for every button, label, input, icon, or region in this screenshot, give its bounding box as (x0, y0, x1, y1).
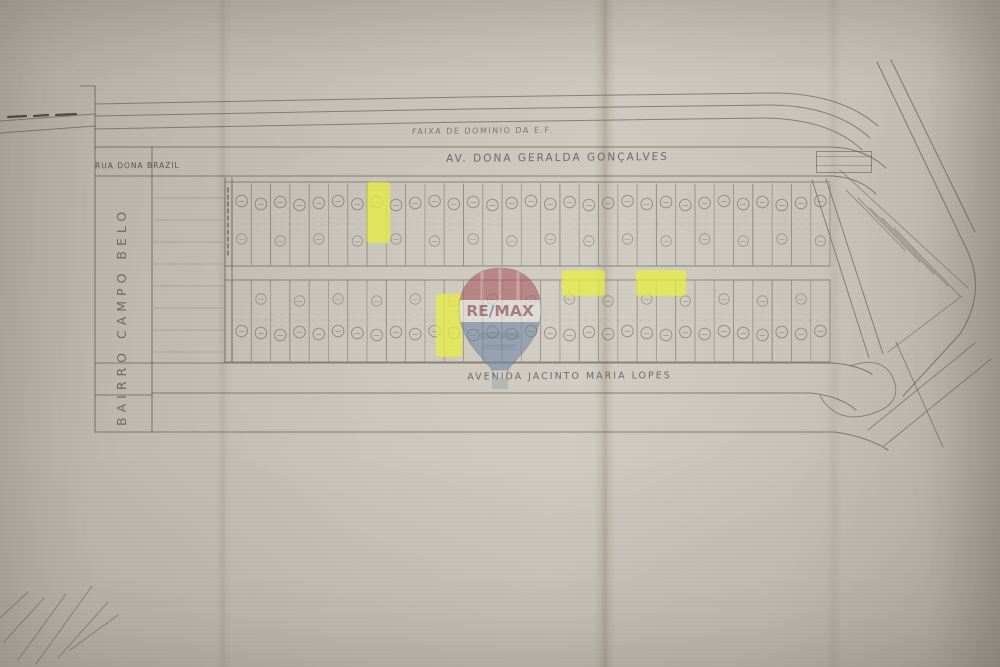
remax-wordmark: RE/MAX (466, 302, 534, 320)
hot-air-balloon-icon: RE/MAX (440, 260, 560, 402)
bottom-right-roads (820, 342, 991, 447)
remax-watermark: RE/MAX (440, 260, 560, 402)
balloon-basket (492, 378, 508, 389)
avenue-top-lines (95, 147, 886, 194)
small-annotation-box (816, 151, 872, 173)
plan-boundary-lines (95, 86, 232, 432)
triangle-block-lot-lines (840, 170, 968, 352)
pencil-sketch-strokes (0, 586, 118, 664)
highway-lines (0, 86, 878, 150)
plat-map-photo: FAIXA DE DOMINIO DA E.F. RUA DONA BRAZIL… (0, 0, 1000, 667)
